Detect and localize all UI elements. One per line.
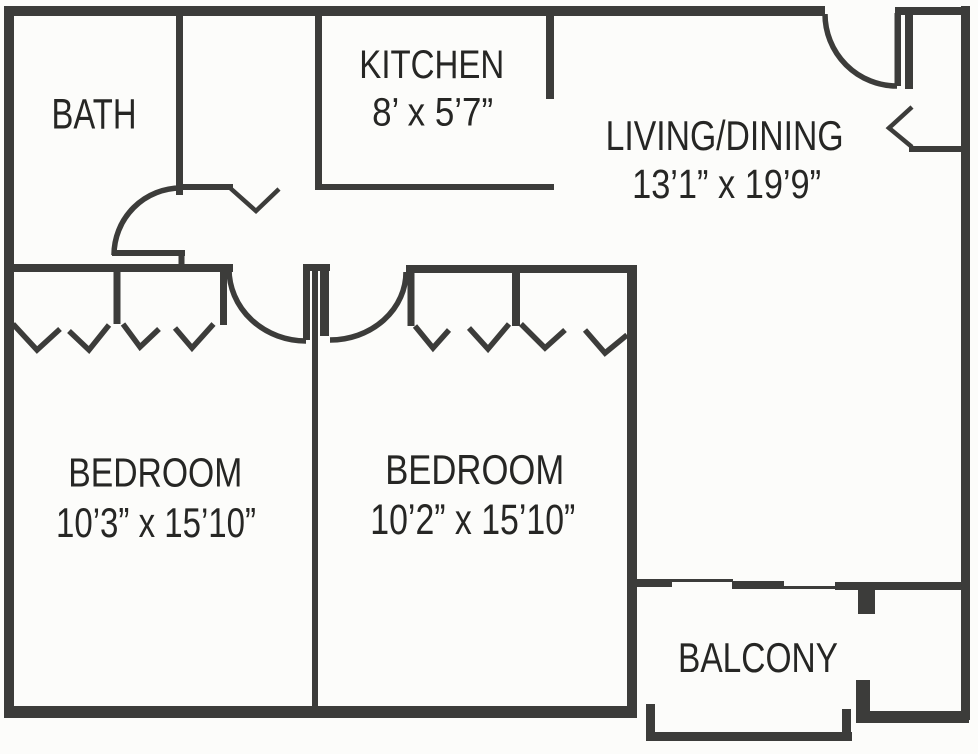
svg-text:8’ x 5’7”: 8’ x 5’7” — [372, 91, 493, 135]
svg-text:BALCONY: BALCONY — [678, 634, 838, 681]
svg-text:BEDROOM: BEDROOM — [385, 446, 564, 493]
svg-text:10’2” x 15’10”: 10’2” x 15’10” — [370, 496, 575, 544]
svg-text:13’1” x 19’9”: 13’1” x 19’9” — [632, 161, 821, 207]
svg-text:BEDROOM: BEDROOM — [68, 450, 242, 496]
svg-text:LIVING/DINING: LIVING/DINING — [606, 112, 844, 159]
svg-text:KITCHEN: KITCHEN — [359, 43, 504, 87]
svg-text:10’3” x 15’10”: 10’3” x 15’10” — [56, 499, 256, 546]
svg-text:BATH: BATH — [52, 91, 137, 139]
